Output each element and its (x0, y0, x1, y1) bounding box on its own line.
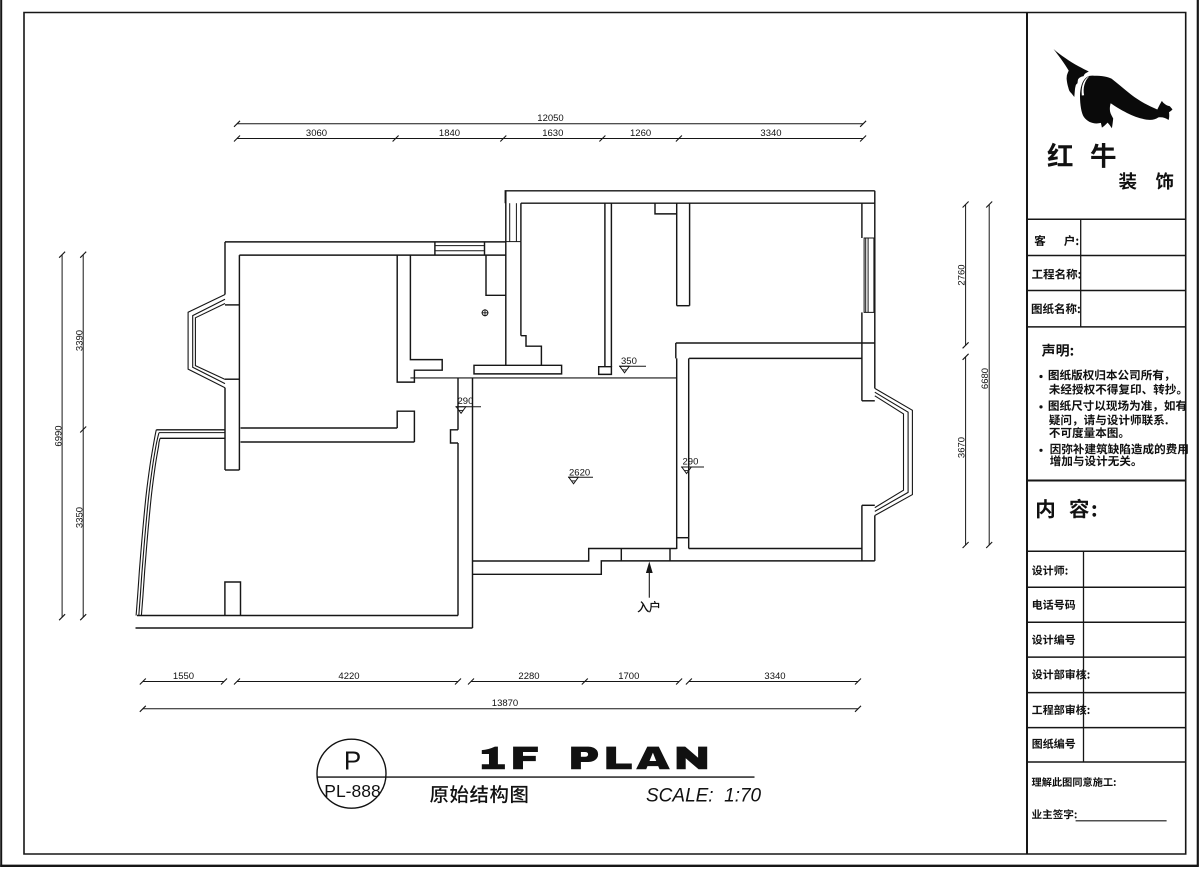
svg-text:6990: 6990 (54, 425, 65, 446)
svg-text:1700: 1700 (618, 671, 639, 682)
svg-text:12050: 12050 (537, 113, 563, 124)
svg-text:1260: 1260 (630, 128, 651, 139)
svg-text:4220: 4220 (338, 671, 359, 682)
svg-text:P: P (344, 746, 361, 776)
svg-text:PL-888: PL-888 (324, 781, 380, 801)
svg-text:1550: 1550 (173, 671, 194, 682)
svg-text:290: 290 (458, 396, 474, 407)
svg-text:1630: 1630 (542, 128, 563, 139)
svg-text:2280: 2280 (518, 671, 539, 682)
svg-text:1840: 1840 (439, 128, 460, 139)
svg-text:3390: 3390 (75, 330, 86, 351)
svg-text:290: 290 (683, 457, 699, 468)
svg-text:6680: 6680 (980, 368, 991, 389)
svg-text:3350: 3350 (75, 507, 86, 528)
svg-text:3340: 3340 (764, 671, 785, 682)
svg-text:3340: 3340 (760, 128, 781, 139)
svg-text:3060: 3060 (306, 128, 327, 139)
svg-text:SCALE: 1:70: SCALE: 1:70 (646, 786, 762, 807)
svg-text:3670: 3670 (957, 437, 968, 458)
svg-text:350: 350 (621, 356, 637, 367)
svg-text:13870: 13870 (492, 698, 518, 709)
svg-text:2760: 2760 (957, 264, 968, 285)
